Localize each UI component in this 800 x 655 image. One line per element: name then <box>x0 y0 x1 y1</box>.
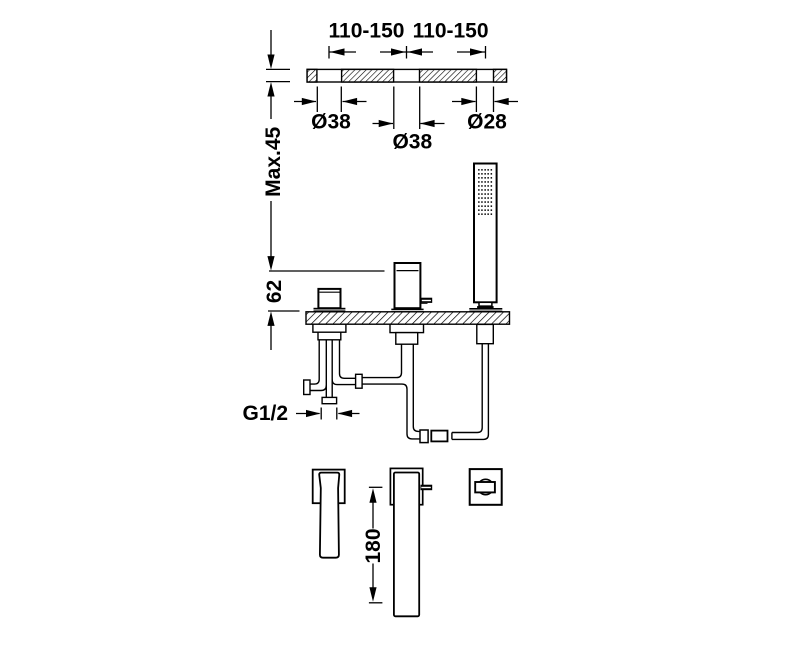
svg-text:G1/2: G1/2 <box>243 402 289 425</box>
svg-text:180: 180 <box>362 528 385 563</box>
svg-text:Ø38: Ø38 <box>311 111 351 134</box>
svg-text:Ø28: Ø28 <box>467 111 507 134</box>
svg-text:Max.45: Max.45 <box>262 126 285 196</box>
svg-text:Ø38: Ø38 <box>392 131 432 154</box>
svg-text:62: 62 <box>263 280 286 303</box>
svg-text:110-150: 110-150 <box>413 20 489 43</box>
svg-text:110-150: 110-150 <box>329 20 405 43</box>
